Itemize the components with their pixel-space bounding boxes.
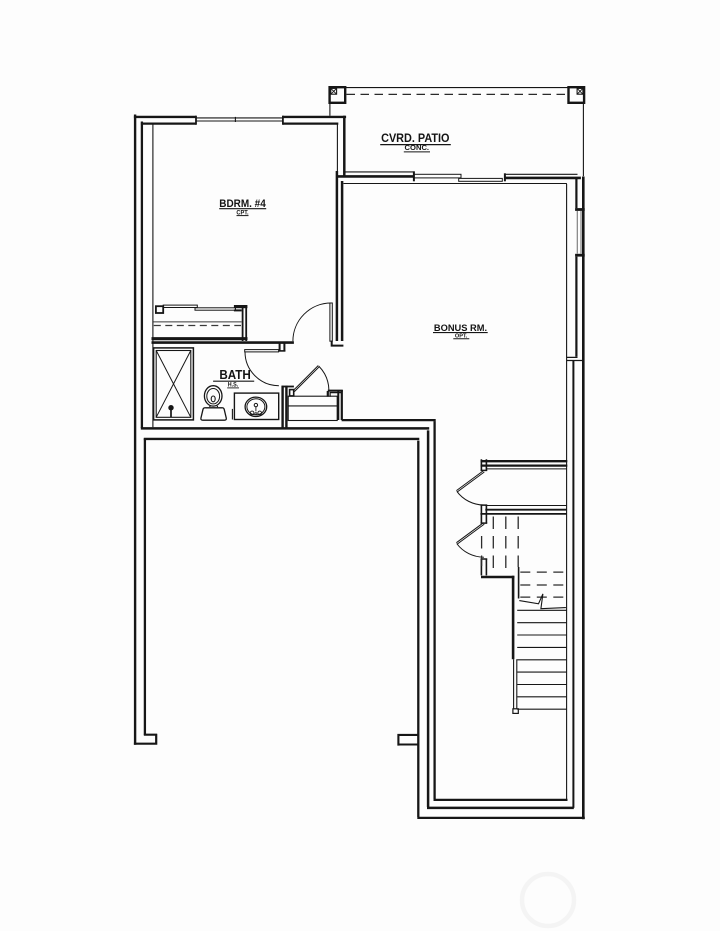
svg-text:CVRD. PATIO: CVRD. PATIO (381, 131, 449, 145)
svg-text:BATH: BATH (219, 367, 251, 382)
svg-text:CONC.: CONC. (405, 145, 430, 152)
